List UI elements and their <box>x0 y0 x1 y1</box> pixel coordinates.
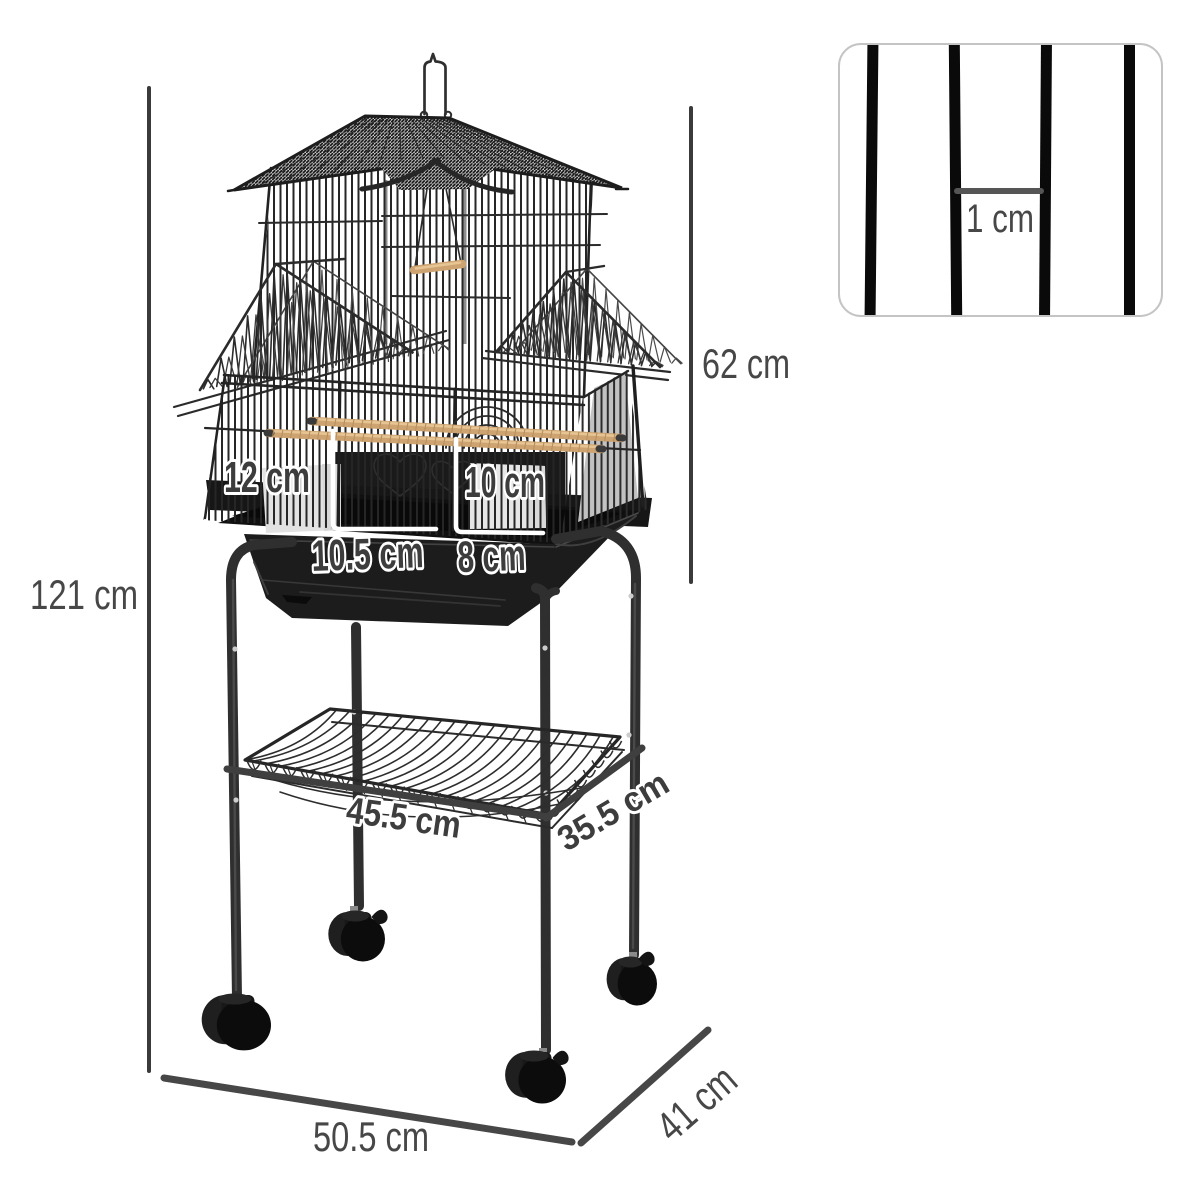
svg-text:10 cm: 10 cm <box>465 458 545 507</box>
svg-text:10.5 cm: 10.5 cm <box>311 528 425 581</box>
svg-text:62 cm: 62 cm <box>702 340 790 387</box>
svg-text:8 cm: 8 cm <box>457 531 527 582</box>
svg-text:121 cm: 121 cm <box>30 571 138 618</box>
svg-text:12 cm: 12 cm <box>224 453 310 502</box>
svg-text:1 cm: 1 cm <box>966 197 1034 241</box>
svg-text:50.5 cm: 50.5 cm <box>313 1113 429 1160</box>
